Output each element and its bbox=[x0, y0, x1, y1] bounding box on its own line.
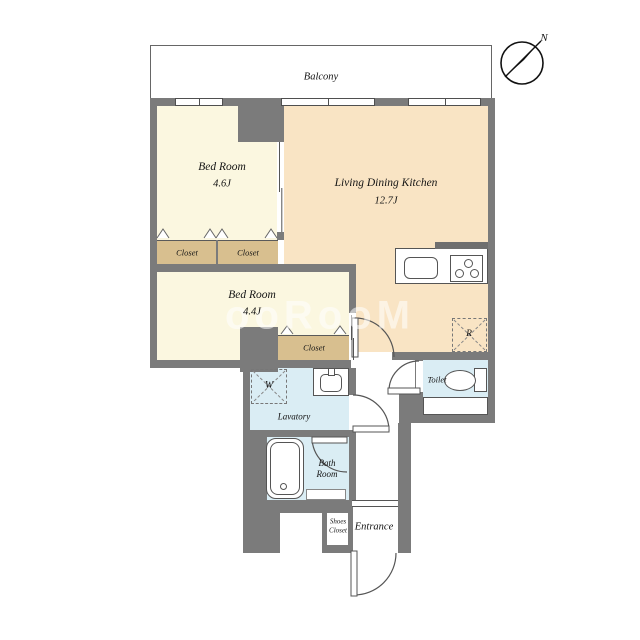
wall-under-toilet bbox=[399, 415, 495, 423]
outdoor-notch bbox=[280, 513, 322, 560]
compass-north-label: N bbox=[540, 32, 547, 46]
washbasin-tap bbox=[328, 368, 335, 376]
entrance-label: Entrance bbox=[355, 520, 394, 533]
kitchen-sink bbox=[404, 257, 438, 279]
wall-ldk-bottom bbox=[392, 352, 488, 360]
wall-closet-divider bbox=[216, 240, 218, 266]
closet-b-label: Closet bbox=[237, 248, 259, 259]
stove-burner bbox=[455, 269, 464, 278]
wall-under-closets bbox=[150, 264, 356, 272]
wall-bedroom2-bottom bbox=[150, 360, 351, 368]
compass-needle-line bbox=[505, 41, 541, 77]
lavatory-label: Lavatory bbox=[278, 411, 311, 422]
wall-hall-right bbox=[398, 423, 411, 553]
toilet-cabinet bbox=[423, 397, 488, 415]
sliding-door-bedroom1 bbox=[277, 142, 284, 232]
window bbox=[281, 98, 375, 106]
refrigerator-symbol-label: R bbox=[466, 329, 472, 341]
door-leaf-entrance bbox=[351, 551, 357, 596]
bathroom-label-line2: Room bbox=[317, 469, 338, 479]
washer-symbol-label: W bbox=[265, 380, 273, 393]
toilet-label: Toilet bbox=[427, 375, 446, 386]
wall-right bbox=[488, 98, 495, 423]
ldk-name-label: Living Dining Kitchen bbox=[335, 176, 438, 190]
entrance-threshold bbox=[352, 500, 398, 507]
closet-c-label: Closet bbox=[303, 343, 325, 354]
door-arc-lavatory bbox=[353, 395, 389, 431]
door-arc-entrance bbox=[354, 553, 396, 595]
toilet-door-opening bbox=[416, 361, 423, 392]
bedroom2-size-label: 4.4J bbox=[243, 305, 261, 318]
balcony-label: Balcony bbox=[304, 70, 338, 83]
ldk-size-label: 12.7J bbox=[374, 194, 397, 207]
washbasin-bowl bbox=[320, 374, 342, 392]
floor-plan: ooRooM Balcony N Bed Room 4.6J Living Di… bbox=[0, 0, 640, 640]
kitchen-hood-bar bbox=[435, 242, 488, 249]
wall-left bbox=[150, 98, 157, 368]
wall-bottom-left-mass bbox=[243, 500, 280, 553]
bath-step bbox=[306, 489, 346, 500]
door-leaf-lavatory bbox=[353, 426, 389, 432]
window bbox=[408, 98, 481, 106]
bedroom2-name-label: Bed Room bbox=[228, 288, 276, 302]
wall-lavatory-right bbox=[349, 368, 356, 395]
shoes-closet-label: Shoes Closet bbox=[329, 517, 347, 535]
bedroom1-size-label: 4.6J bbox=[213, 177, 231, 190]
bedroom1-name-label: Bed Room bbox=[198, 160, 246, 174]
wall-lavatory-left bbox=[243, 360, 250, 437]
stove-burner bbox=[464, 259, 473, 268]
stove-burner bbox=[470, 269, 479, 278]
compass-north-arrow-icon bbox=[505, 43, 539, 77]
entrance-door-opening bbox=[353, 545, 398, 553]
closet-a-label: Closet bbox=[176, 248, 198, 259]
wall-bath-right bbox=[349, 431, 356, 505]
wall-bath-left-mass bbox=[243, 430, 267, 500]
bathroom-label-line1: Bath bbox=[319, 458, 336, 468]
ldk-door-opening bbox=[351, 352, 392, 360]
toilet-bowl bbox=[444, 370, 476, 391]
shoes-closet-label-line2: Closet bbox=[329, 526, 347, 534]
window bbox=[175, 98, 223, 106]
wall-bath-bottom bbox=[280, 500, 352, 513]
shoes-closet-label-line1: Shoes bbox=[330, 517, 346, 525]
bathtub-drain bbox=[280, 483, 287, 490]
compass-circle bbox=[501, 42, 543, 84]
bathroom-label: Bath Room bbox=[317, 458, 338, 481]
lavatory-door-opening bbox=[349, 395, 356, 430]
